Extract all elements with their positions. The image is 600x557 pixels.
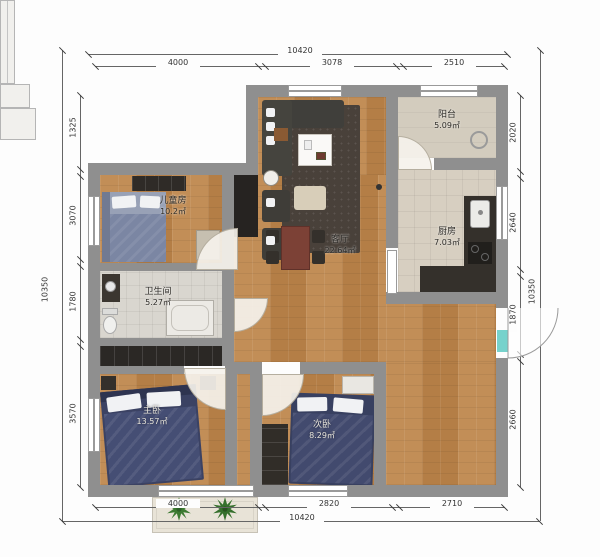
second-bed-pillow bbox=[333, 397, 364, 414]
wall bbox=[434, 158, 496, 170]
room-name: 客厅 bbox=[305, 235, 375, 246]
dining-chair bbox=[266, 251, 279, 264]
coffee-table-item bbox=[304, 140, 312, 150]
washing-machine-drum bbox=[470, 131, 488, 149]
armchair-pillow bbox=[266, 236, 275, 245]
master-bed bbox=[100, 384, 204, 488]
dimension-label: 2710 bbox=[430, 499, 474, 508]
room-name: 卫生间 bbox=[123, 287, 193, 298]
dimension-line-right-chain bbox=[520, 95, 521, 487]
between-bedrooms-floor bbox=[237, 374, 250, 485]
dimension-line-left-overall bbox=[62, 50, 63, 521]
dimension-label: 4000 bbox=[156, 499, 200, 508]
wall bbox=[246, 85, 258, 175]
dimension-label: 2660 bbox=[509, 402, 518, 438]
ottoman bbox=[294, 186, 326, 210]
room-label-kitchen: 厨房 7.03㎡ bbox=[412, 227, 482, 247]
porch-door bbox=[158, 485, 254, 497]
toilet-tank bbox=[102, 308, 118, 315]
living-window bbox=[288, 85, 342, 97]
second-bedroom-dresser bbox=[342, 376, 374, 394]
wall bbox=[386, 97, 398, 248]
room-name: 次卧 bbox=[287, 420, 357, 431]
shower-tub-inner bbox=[171, 305, 209, 331]
room-area: 5.27㎡ bbox=[123, 298, 193, 307]
master-window bbox=[88, 398, 100, 452]
dimension-label: 3078 bbox=[310, 58, 354, 67]
dimension-label: 3070 bbox=[69, 198, 78, 234]
bottom-right-floor bbox=[386, 362, 496, 485]
room-area: 22.64㎡ bbox=[305, 246, 375, 255]
coffee-table-item bbox=[316, 152, 326, 160]
children-bed-blanket bbox=[110, 214, 166, 262]
room-name: 厨房 bbox=[412, 227, 482, 238]
kitchen-window bbox=[496, 186, 508, 240]
round-side-table bbox=[263, 170, 279, 186]
washing-machine bbox=[0, 108, 36, 140]
wall bbox=[374, 362, 386, 485]
room-label-master: 主卧 13.57㎡ bbox=[117, 406, 187, 426]
children-bed-pillow bbox=[112, 195, 137, 209]
room-area: 7.03㎡ bbox=[412, 238, 482, 247]
children-bed-headboard bbox=[102, 192, 110, 262]
balcony-window bbox=[420, 85, 478, 97]
sofa-side-table bbox=[274, 128, 288, 141]
dimension-label: 10420 bbox=[280, 513, 324, 522]
wall bbox=[88, 163, 258, 175]
dimension-label: 1325 bbox=[69, 110, 78, 146]
dimension-label: 10350 bbox=[528, 274, 537, 310]
floor-plan: 儿童房 10.2㎡ 卫生间 5.27㎡ 客厅 22.64㎡ 厨房 7.03㎡ 阳… bbox=[0, 0, 600, 557]
children-window bbox=[88, 196, 100, 246]
master-closet bbox=[100, 344, 225, 366]
stove-burner bbox=[481, 253, 489, 261]
plant-icon bbox=[212, 496, 238, 522]
wall bbox=[222, 175, 234, 366]
room-label-bathroom: 卫生间 5.27㎡ bbox=[123, 287, 193, 307]
kitchen-faucet bbox=[478, 210, 483, 215]
room-name: 阳台 bbox=[412, 110, 482, 121]
radiator bbox=[0, 0, 15, 84]
radiator-valve bbox=[376, 184, 382, 190]
room-name: 儿童房 bbox=[138, 196, 208, 207]
wall bbox=[250, 374, 262, 485]
dimension-label: 10350 bbox=[41, 272, 50, 308]
children-wardrobe bbox=[132, 176, 186, 191]
dimension-label: 10420 bbox=[278, 46, 322, 55]
dimension-label: 2640 bbox=[509, 205, 518, 241]
entry-hall-floor bbox=[386, 304, 496, 362]
room-label-living: 客厅 22.64㎡ bbox=[305, 235, 375, 255]
room-label-second: 次卧 8.29㎡ bbox=[287, 420, 357, 440]
dimension-label: 4000 bbox=[156, 58, 200, 67]
second-bed-pillow bbox=[297, 397, 327, 412]
bathroom-sink bbox=[105, 281, 116, 292]
dimension-line-left-chain bbox=[80, 95, 81, 487]
dimension-label: 3570 bbox=[69, 396, 78, 432]
wall bbox=[234, 362, 262, 374]
nightstand bbox=[101, 376, 116, 390]
fridge bbox=[0, 84, 30, 108]
room-name: 主卧 bbox=[117, 406, 187, 417]
room-area: 13.57㎡ bbox=[117, 417, 187, 426]
wall bbox=[100, 338, 222, 346]
entry-door-swing bbox=[496, 308, 560, 360]
second-bedroom-wardrobe bbox=[262, 424, 288, 485]
wall bbox=[225, 366, 237, 485]
room-label-children: 儿童房 10.2㎡ bbox=[138, 196, 208, 216]
room-area: 10.2㎡ bbox=[138, 207, 208, 216]
wall bbox=[100, 366, 184, 374]
dimension-label: 1870 bbox=[509, 297, 518, 333]
toilet-bowl bbox=[103, 316, 117, 334]
dimension-label: 2510 bbox=[432, 58, 476, 67]
second-bedroom-window bbox=[288, 485, 348, 497]
coffee-table bbox=[298, 134, 332, 166]
dimension-label: 2820 bbox=[307, 499, 351, 508]
kitchen-sliding-door bbox=[387, 250, 397, 294]
wall bbox=[386, 292, 496, 304]
kitchen-counter-bottom bbox=[420, 266, 496, 292]
room-area: 5.09㎡ bbox=[412, 121, 482, 130]
dimension-label: 1780 bbox=[69, 284, 78, 320]
armchair-pillow bbox=[266, 198, 275, 207]
wall bbox=[496, 358, 508, 497]
room-label-balcony: 阳台 5.09㎡ bbox=[412, 110, 482, 130]
dimension-label: 2020 bbox=[509, 115, 518, 151]
sofa-pillow bbox=[266, 108, 275, 117]
dimension-line-right-overall bbox=[540, 50, 541, 521]
room-area: 8.29㎡ bbox=[287, 431, 357, 440]
